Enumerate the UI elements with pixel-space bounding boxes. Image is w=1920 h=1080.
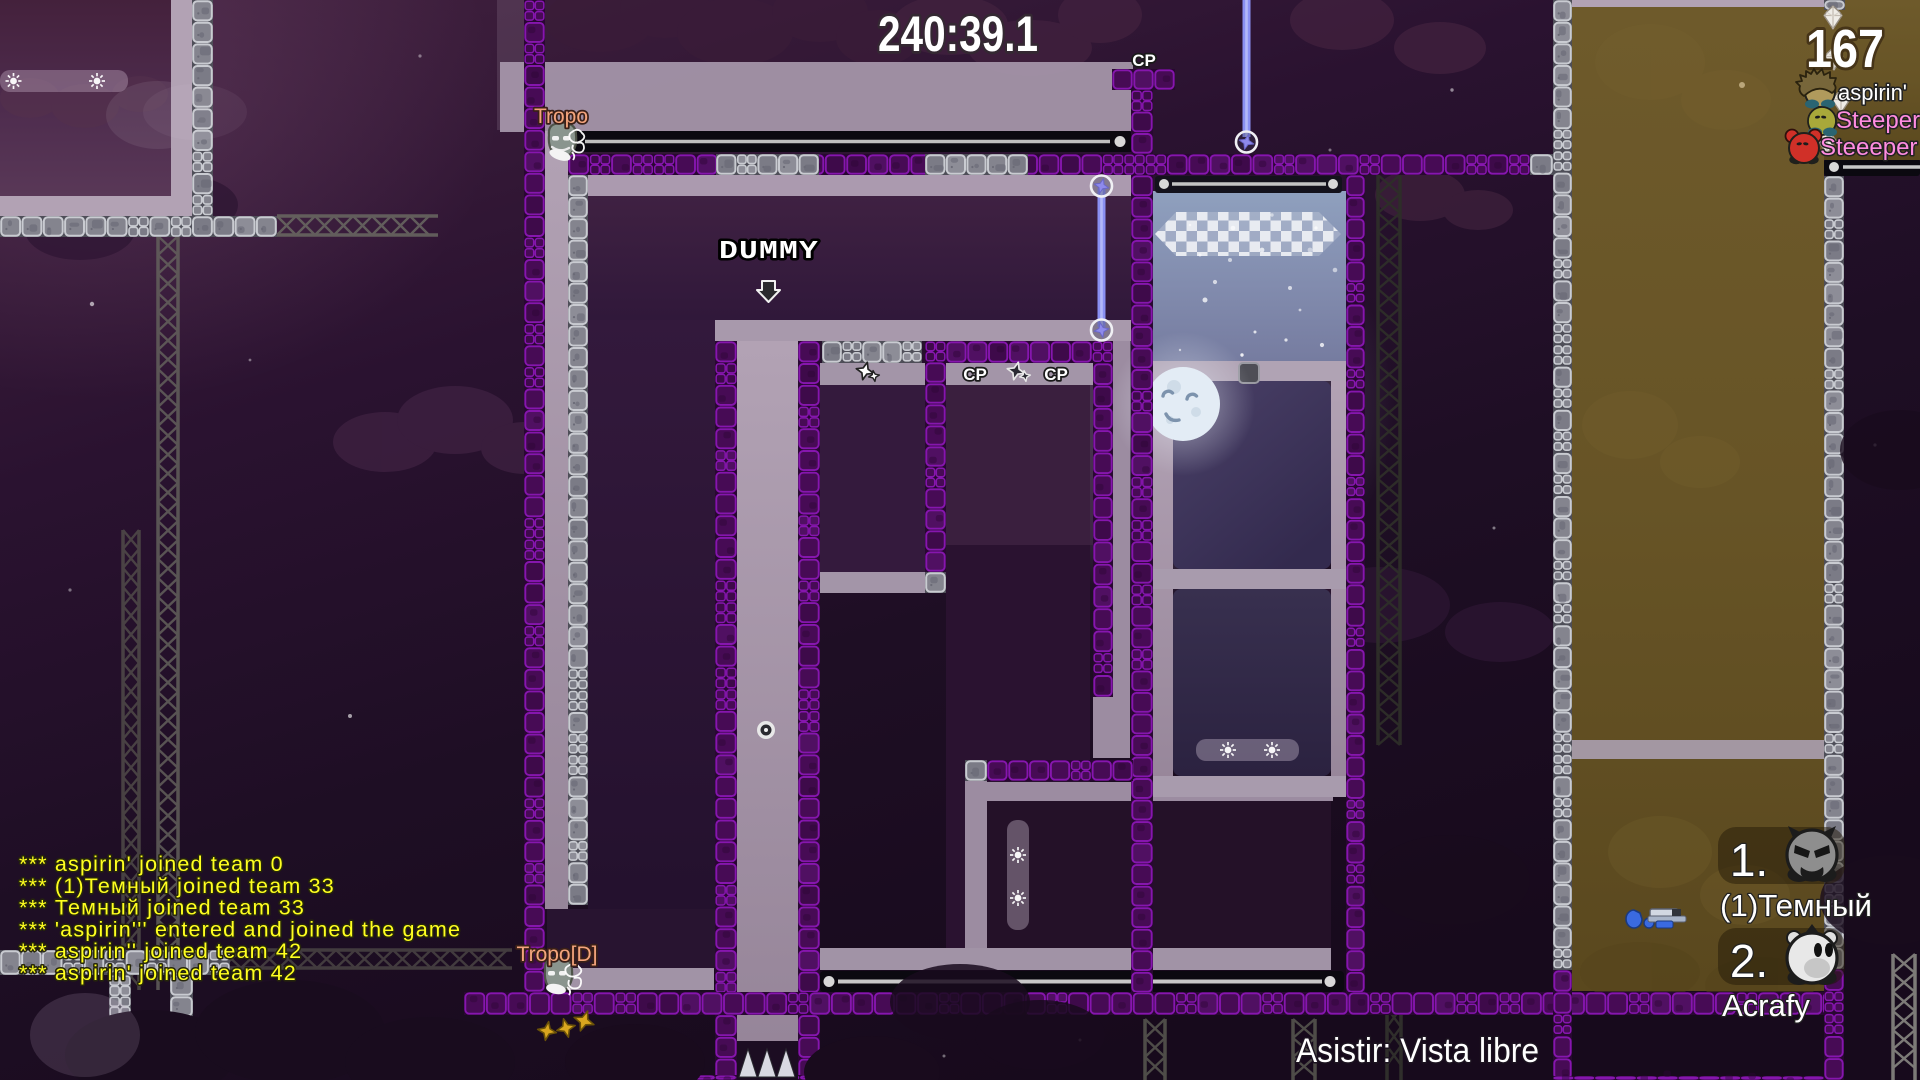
svg-text:CP: CP — [1132, 51, 1156, 70]
svg-text:CP: CP — [1044, 365, 1068, 384]
svg-text:Steeeper: Steeeper — [1820, 134, 1917, 161]
svg-text:240:39.1: 240:39.1 — [878, 6, 1038, 62]
svg-text:*** aspirin' joined team 42: *** aspirin' joined team 42 — [19, 961, 297, 985]
svg-text:DUMMY: DUMMY — [719, 236, 819, 266]
svg-text:(1)Темный: (1)Темный — [1720, 888, 1872, 923]
svg-text:2.: 2. — [1730, 935, 1768, 987]
svg-text:Acrafy: Acrafy — [1722, 988, 1810, 1023]
svg-text:*** 'aspirin''' entered and jo: *** 'aspirin''' entered and joined the g… — [19, 917, 461, 941]
svg-text:*** aspirin'' joined team 42: *** aspirin'' joined team 42 — [19, 939, 302, 963]
svg-text:Asistir: Vista libre: Asistir: Vista libre — [1296, 1032, 1539, 1070]
svg-text:Tropo[D]: Tropo[D] — [517, 943, 598, 966]
svg-text:167: 167 — [1806, 19, 1884, 79]
svg-text:*** aspirin' joined team 0: *** aspirin' joined team 0 — [19, 852, 284, 876]
svg-text:*** Темный joined team 33: *** Темный joined team 33 — [19, 896, 305, 920]
svg-text:Tropo: Tropo — [534, 105, 588, 128]
svg-text:aspirin': aspirin' — [1838, 80, 1907, 105]
svg-text:1.: 1. — [1730, 834, 1768, 886]
svg-text:CP: CP — [963, 365, 987, 384]
svg-text:*** (1)Темный joined team 33: *** (1)Темный joined team 33 — [19, 874, 335, 898]
svg-text:Steeper: Steeper — [1836, 107, 1920, 134]
